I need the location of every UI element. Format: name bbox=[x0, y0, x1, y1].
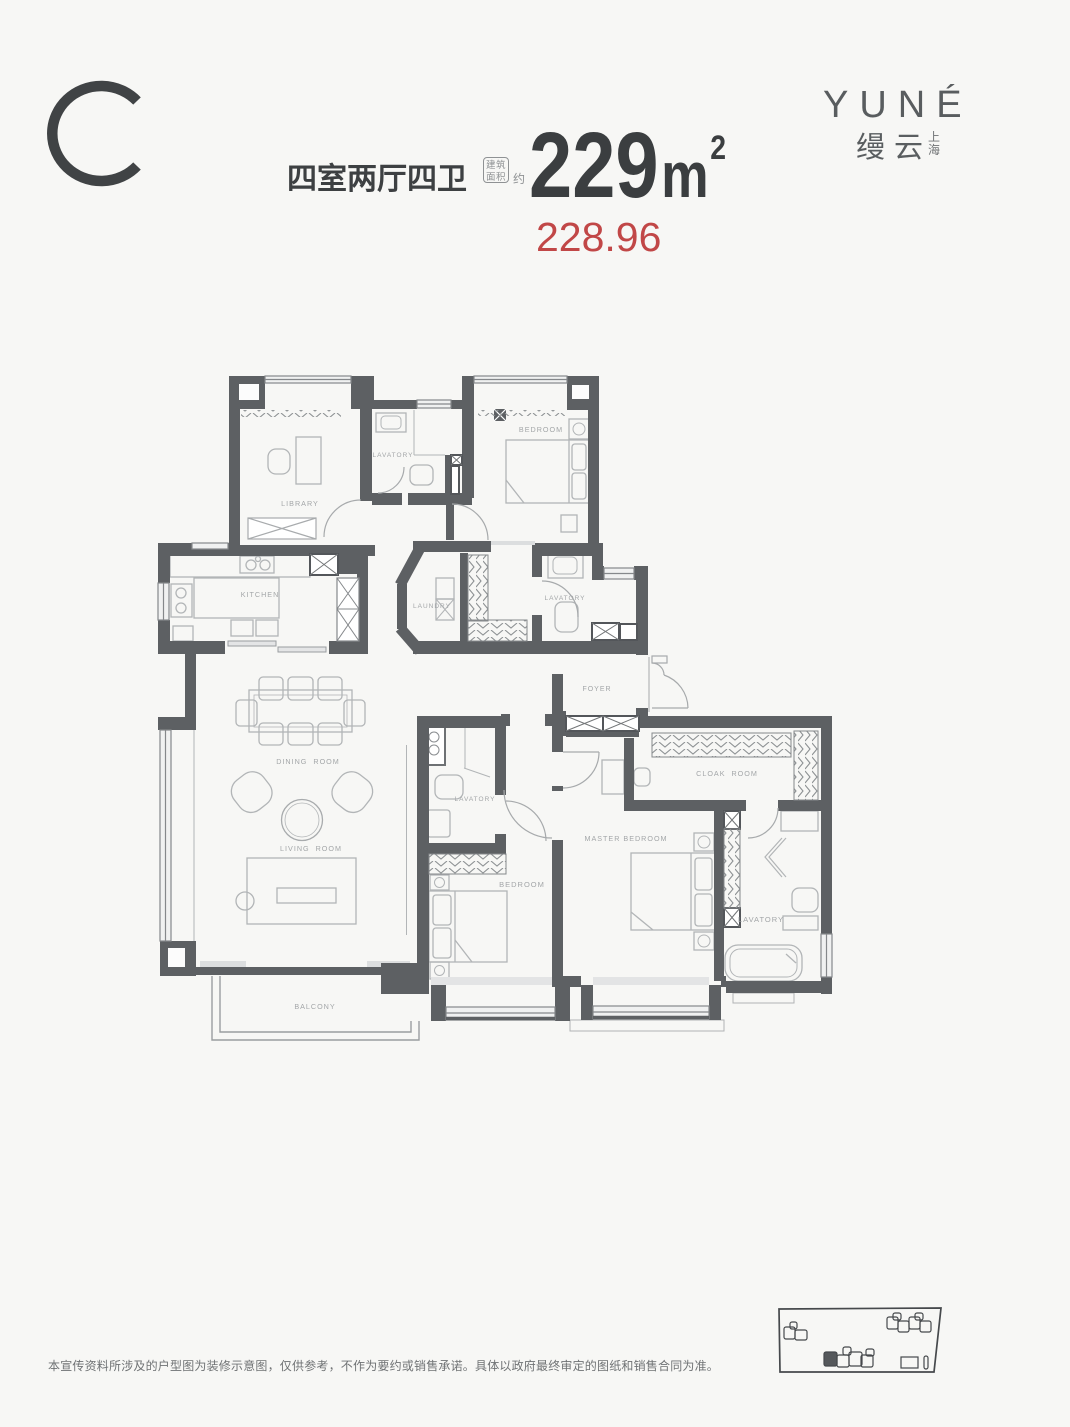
svg-text:LAUNDRY: LAUNDRY bbox=[413, 603, 451, 610]
svg-text:KITCHEN: KITCHEN bbox=[241, 590, 280, 599]
svg-text:LAVATORY: LAVATORY bbox=[545, 595, 586, 602]
svg-text:LIVING ROOM: LIVING ROOM bbox=[280, 844, 342, 853]
svg-text:DINING ROOM: DINING ROOM bbox=[276, 757, 340, 766]
svg-text:FOYER: FOYER bbox=[582, 686, 611, 693]
svg-text:CLOAK ROOM: CLOAK ROOM bbox=[696, 769, 758, 778]
svg-text:BEDROOM: BEDROOM bbox=[499, 880, 545, 889]
svg-text:MASTER BEDROOM: MASTER BEDROOM bbox=[584, 834, 667, 843]
svg-text:LAVATORY: LAVATORY bbox=[373, 452, 414, 459]
svg-text:LIBRARY: LIBRARY bbox=[281, 499, 319, 508]
svg-text:BEDROOM: BEDROOM bbox=[519, 425, 563, 434]
svg-text:BALCONY: BALCONY bbox=[294, 1002, 335, 1011]
svg-text:LAVATORY: LAVATORY bbox=[738, 915, 784, 924]
svg-text:LAVATORY: LAVATORY bbox=[455, 796, 496, 803]
